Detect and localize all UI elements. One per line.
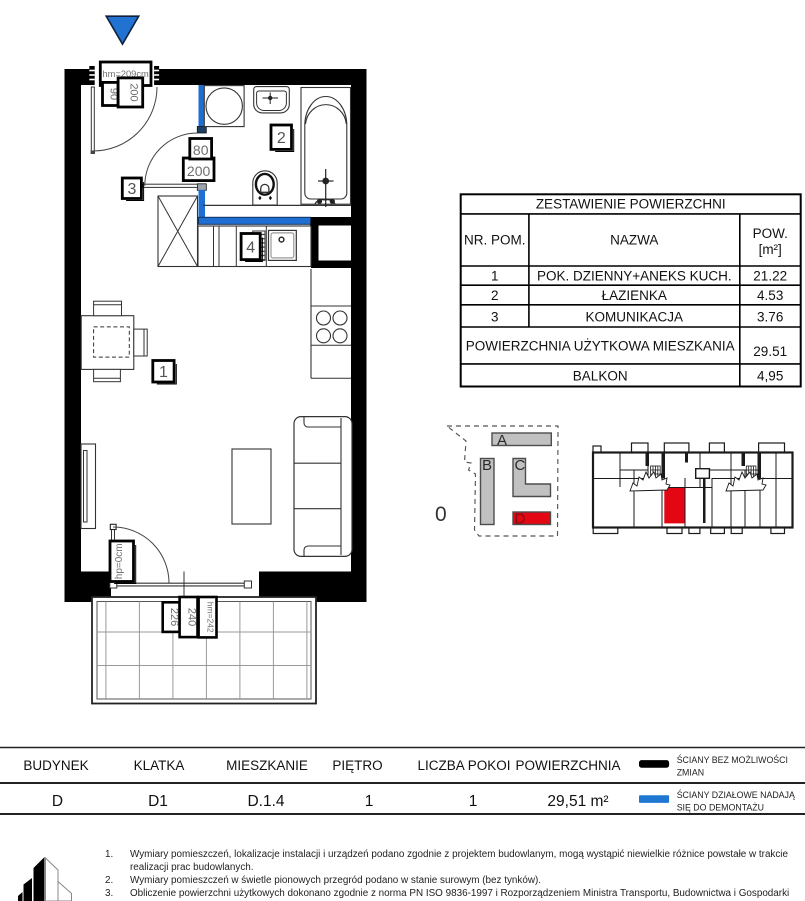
svg-text:ZMIAN: ZMIAN	[677, 767, 704, 777]
svg-text:POWIERZCHNIA: POWIERZCHNIA	[515, 758, 620, 773]
svg-text:2: 2	[277, 130, 286, 147]
svg-text:3: 3	[127, 181, 136, 198]
svg-text:D: D	[52, 793, 63, 810]
svg-text:3.76: 3.76	[757, 310, 783, 325]
svg-text:29.51: 29.51	[753, 344, 787, 359]
svg-text:MIESZKANIE: MIESZKANIE	[226, 758, 308, 773]
svg-text:Obliczenie powierzchni użytkow: Obliczenie powierzchni użytkowych dokona…	[130, 888, 789, 899]
svg-text:D.1.4: D.1.4	[247, 793, 284, 810]
svg-text:KOMUNIKACJA: KOMUNIKACJA	[586, 310, 684, 325]
svg-text:POW.: POW.	[753, 226, 788, 241]
svg-text:SIĘ DO DEMONTAŻU: SIĘ DO DEMONTAŻU	[677, 803, 764, 813]
svg-text:240: 240	[186, 608, 198, 626]
svg-text:BALKON: BALKON	[573, 369, 628, 384]
svg-text:21.22: 21.22	[753, 269, 787, 284]
svg-text:80: 80	[193, 142, 209, 158]
svg-text:B: B	[482, 457, 492, 474]
svg-text:4.53: 4.53	[757, 288, 783, 303]
svg-text:NAZWA: NAZWA	[610, 233, 658, 248]
svg-text:ZESTAWIENIE POWIERZCHNI: ZESTAWIENIE POWIERZCHNI	[536, 197, 726, 212]
svg-text:1: 1	[469, 793, 478, 810]
svg-text:hm=242: hm=242	[206, 602, 216, 633]
svg-text:A: A	[497, 432, 507, 449]
svg-text:2.: 2.	[105, 875, 113, 886]
svg-text:Wymiary pomieszczeń, lokalizac: Wymiary pomieszczeń, lokalizacje instala…	[130, 849, 789, 860]
svg-text:1: 1	[491, 269, 499, 284]
svg-text:[m²]: [m²]	[759, 242, 782, 257]
svg-text:Wymiary pomieszczeń w świetle: Wymiary pomieszczeń w świetle pionowych …	[130, 875, 541, 886]
svg-text:200: 200	[127, 83, 139, 101]
svg-text:4: 4	[246, 239, 255, 256]
svg-text:1: 1	[159, 364, 168, 381]
svg-text:ŚCIANY DZIAŁOWE NADAJĄ: ŚCIANY DZIAŁOWE NADAJĄ	[677, 789, 795, 800]
svg-text:29,51 m²: 29,51 m²	[547, 793, 608, 810]
svg-text:ŚCIANY BEZ MOŻLIWOŚCI: ŚCIANY BEZ MOŻLIWOŚCI	[677, 754, 788, 765]
svg-text:NR. POM.: NR. POM.	[464, 233, 526, 248]
svg-text:200: 200	[187, 163, 211, 179]
svg-text:ŁAZIENKA: ŁAZIENKA	[602, 288, 667, 303]
svg-text:D1: D1	[148, 793, 168, 810]
svg-text:1.: 1.	[105, 849, 113, 860]
svg-text:POK. DZIENNY+ANEKS KUCH.: POK. DZIENNY+ANEKS KUCH.	[537, 269, 732, 284]
svg-text:2: 2	[491, 288, 499, 303]
svg-text:hp=0cm: hp=0cm	[114, 543, 125, 579]
svg-text:3.: 3.	[105, 888, 113, 899]
svg-text:LICZBA POKOI: LICZBA POKOI	[417, 758, 510, 773]
svg-text:BUDYNEK: BUDYNEK	[23, 758, 88, 773]
svg-text:D: D	[515, 511, 526, 528]
svg-text:1: 1	[365, 793, 374, 810]
svg-text:realizacji prac budowlanych.: realizacji prac budowlanych.	[130, 862, 254, 873]
svg-text:KLATKA: KLATKA	[134, 758, 185, 773]
svg-text:PIĘTRO: PIĘTRO	[332, 758, 382, 773]
svg-text:0: 0	[435, 503, 447, 526]
svg-text:POWIERZCHNIA UŻYTKOWA MIESZKAN: POWIERZCHNIA UŻYTKOWA MIESZKANIA	[466, 339, 735, 354]
svg-text:4,95: 4,95	[757, 369, 783, 384]
svg-text:3: 3	[491, 310, 499, 325]
svg-text:C: C	[515, 457, 526, 474]
